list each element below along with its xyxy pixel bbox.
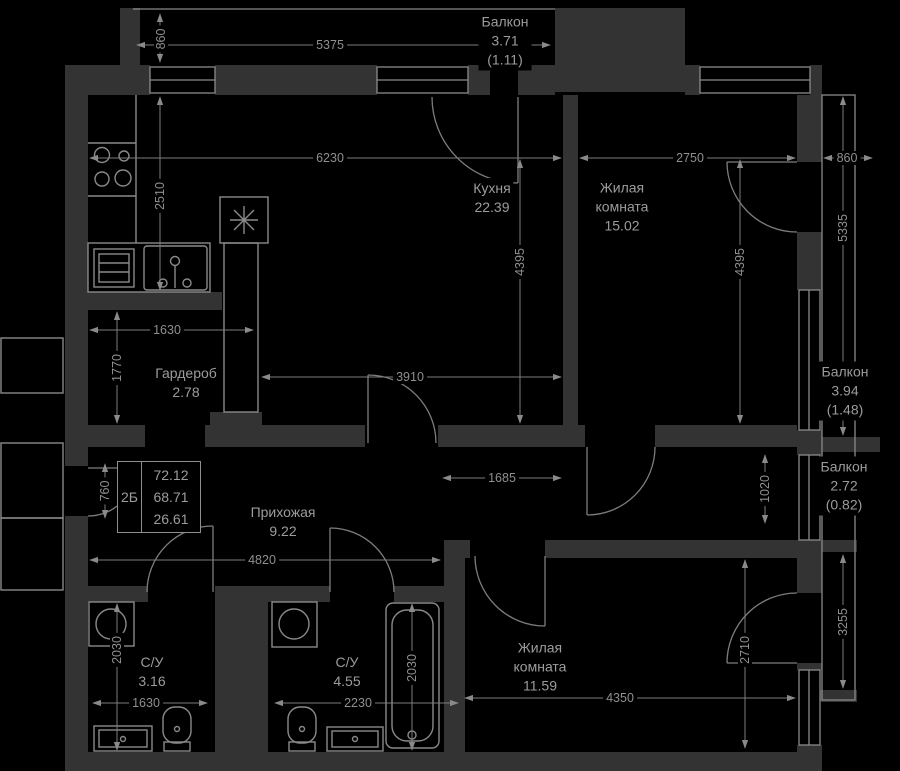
- room-label-balcony-top: Балкон 3.71 (1.11): [479, 12, 532, 71]
- wall-top: [685, 65, 700, 95]
- dishwasher-icon: [94, 249, 134, 287]
- room-area-reduced: (1.48): [822, 401, 869, 420]
- wall-bottom: [65, 752, 822, 771]
- wall-stub: [210, 412, 262, 425]
- floor-plan: 5375 860 6230 2750 860 2510 4395 4395 53…: [0, 0, 900, 771]
- wall-right: [797, 430, 822, 455]
- dim-living1-height: 4395: [733, 245, 747, 279]
- room-area: 2.72: [821, 477, 868, 496]
- neighbor-structures: [1, 338, 63, 590]
- wall-hall-top: [438, 425, 585, 447]
- room-name: комната: [596, 198, 649, 217]
- wall-left: [65, 516, 88, 752]
- window: [799, 290, 820, 430]
- room-name: Балкон: [821, 458, 868, 477]
- corridor-block: [1, 443, 63, 518]
- wall-living2-top: [444, 540, 470, 558]
- room-area: 3.94: [822, 382, 869, 401]
- dim-top-balcony-depth: 860: [154, 26, 168, 53]
- wall-top: [810, 65, 822, 95]
- dim-entry-opening: 760: [98, 478, 112, 505]
- unit-area-total: 72.12: [153, 467, 188, 483]
- unit-info-box: 2Б 72.12 68.71 26.61: [117, 461, 201, 533]
- wall-balcony-anchor: [120, 8, 140, 65]
- wall-bath-divider: [215, 602, 268, 752]
- door-bath1: [147, 526, 213, 592]
- room-label-balcony-right-lower: Балкон 2.72 (0.82): [818, 457, 871, 516]
- wall-right: [797, 95, 822, 162]
- room-name: комната: [514, 658, 567, 677]
- wall-right: [797, 663, 822, 670]
- toilet-icon: [288, 707, 316, 751]
- room-label-wardrobe: Гардероб 2.78: [152, 363, 220, 403]
- ventilation-shaft-icon: [220, 197, 268, 243]
- wall-living2-top: [545, 540, 797, 558]
- wall-hall-top: [65, 425, 145, 447]
- wall-hall-top: [205, 425, 365, 447]
- room-name: Прихожая: [251, 503, 316, 522]
- room-area: 3.16: [138, 672, 165, 691]
- wall-hall-top: [655, 425, 797, 447]
- room-name: Жилая: [596, 179, 649, 198]
- duct-column: [224, 243, 258, 412]
- room-area-reduced: (1.11): [482, 51, 529, 70]
- dim-wardrobe-height: 1770: [110, 351, 124, 385]
- vanity-cabinet-icon: [327, 727, 383, 751]
- window: [377, 67, 468, 93]
- dim-right-balcony-depth: 860: [834, 151, 861, 165]
- wall-left: [65, 95, 88, 466]
- wall-right: [797, 745, 822, 752]
- window: [150, 67, 215, 93]
- corridor-block: [1, 518, 63, 590]
- door-balcony-kitchen: [432, 97, 518, 183]
- dim-bath1-width: 1630: [129, 696, 163, 710]
- washbasin-icon: [272, 602, 317, 647]
- door-balcony-living1: [727, 162, 797, 232]
- dim-living2-height: 2710: [738, 633, 752, 667]
- room-label-bath2: С/У 4.55: [330, 652, 363, 692]
- room-name: С/У: [333, 653, 360, 672]
- dim-kitchen-inner-width: 3910: [393, 370, 427, 384]
- wall-shaft-block: [555, 8, 685, 92]
- window: [799, 670, 820, 745]
- wall-right: [797, 232, 822, 290]
- kitchen-sink-icon: [144, 246, 207, 290]
- wall-bath-top: [88, 586, 148, 602]
- door-living1-entry: [587, 447, 655, 515]
- room-area: 4.55: [333, 672, 360, 691]
- room-label-kitchen: Кухня 22.39: [470, 178, 513, 218]
- room-area: 11.59: [514, 677, 567, 696]
- wall-top: [65, 65, 150, 95]
- room-label-living2: Жилая комната 11.59: [511, 638, 570, 697]
- dim-hall-nook-height: 1020: [758, 472, 772, 506]
- dim-bath2-height: 2030: [405, 651, 419, 685]
- wall-bath-top: [215, 586, 330, 602]
- dim-living1-width: 2750: [673, 151, 707, 165]
- dim-bath1-height: 2030: [110, 633, 124, 667]
- room-area-reduced: (0.82): [821, 496, 868, 515]
- window: [700, 67, 810, 93]
- room-area: 2.78: [155, 383, 217, 402]
- dim-hall-width: 4820: [245, 553, 279, 567]
- wall-top: [215, 65, 377, 95]
- toilet-icon: [163, 707, 191, 751]
- dim-kitchen-height: 4395: [513, 245, 527, 279]
- room-label-hall: Прихожая 9.22: [248, 502, 319, 542]
- room-area: 22.39: [473, 198, 510, 217]
- room-area: 9.22: [251, 522, 316, 541]
- room-area: 3.71: [482, 32, 529, 51]
- room-name: С/У: [138, 653, 165, 672]
- corridor-block: [1, 338, 63, 393]
- balcony-slab: [820, 540, 857, 552]
- stove-icon: [88, 143, 136, 196]
- room-name: Балкон: [482, 13, 529, 32]
- wall-living2-left: [444, 558, 465, 752]
- washing-machine-icon: [94, 726, 152, 751]
- dim-kitchen-left-height: 2510: [153, 179, 167, 213]
- room-name: Жилая: [514, 639, 567, 658]
- unit-area-usable: 68.71: [153, 489, 188, 505]
- room-label-living1: Жилая комната 15.02: [593, 178, 652, 237]
- room-label-balcony-right-upper: Балкон 3.94 (1.48): [819, 362, 872, 421]
- dim-living2-width: 4350: [603, 691, 637, 705]
- room-area: 15.02: [596, 217, 649, 236]
- dim-kitchen-width: 6230: [313, 151, 347, 165]
- dim-right-upper-height: 5335: [836, 211, 850, 245]
- balcony-slab: [820, 437, 880, 452]
- dim-hall-nook-width: 1685: [485, 471, 519, 485]
- room-name: Гардероб: [155, 364, 217, 383]
- door-living2-entry: [475, 556, 545, 626]
- wall-bath-top: [394, 586, 444, 602]
- room-name: Балкон: [822, 363, 869, 382]
- wall-kitchen-living-divider: [563, 95, 578, 425]
- door-hall-kitchen: [368, 375, 436, 443]
- dim-top-width: 5375: [313, 38, 347, 52]
- wall-wardrobe-top: [65, 292, 222, 310]
- wall-right: [797, 540, 822, 593]
- dim-bath2-width: 2230: [341, 696, 375, 710]
- unit-area-living: 26.61: [153, 511, 188, 527]
- dim-wardrobe-width: 1630: [150, 323, 184, 337]
- room-name: Кухня: [473, 179, 510, 198]
- room-label-bath1: С/У 3.16: [135, 652, 168, 692]
- dim-right-lower-height: 3255: [836, 605, 850, 639]
- unit-code: 2Б: [121, 489, 138, 505]
